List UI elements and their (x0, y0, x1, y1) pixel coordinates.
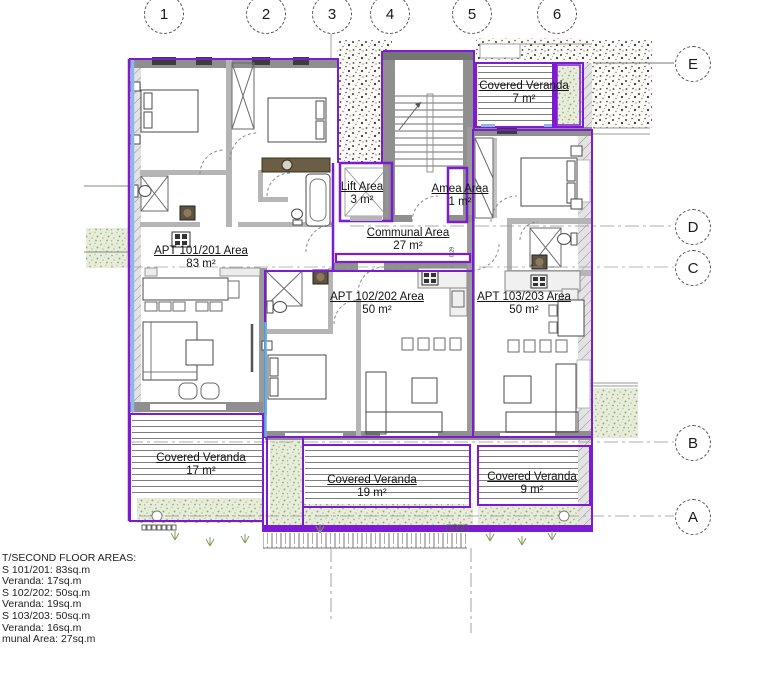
grid-row-bubble-b: B (675, 425, 711, 461)
floor-plan-canvas: 1 2 3 4 5 6 E D C B A APT 101/201 Area 8… (0, 0, 780, 675)
area-tag-value: 50 m² (330, 304, 424, 317)
area-tag-veranda-left: Covered Veranda 17 m² (156, 452, 246, 478)
grid-row-bubble-c: C (675, 250, 711, 286)
area-tag-apt-103-203: APT 103/203 Area 50 m² (477, 291, 571, 317)
area-tag-value: 17 m² (156, 465, 246, 478)
area-tag-value: 1 m² (432, 196, 489, 209)
area-tag-name: Covered Veranda (479, 80, 569, 93)
area-tag-name: Covered Veranda (156, 452, 246, 465)
area-tag-value: 50 m² (477, 304, 571, 317)
area-tag-value: 3 m² (341, 194, 383, 207)
notes-line: T/SECOND FLOOR AREAS: (2, 553, 136, 565)
area-tag-veranda-middle: Covered Veranda 19 m² (327, 474, 417, 500)
area-tag-name: Covered Veranda (327, 474, 417, 487)
area-tag-veranda-right: Covered Veranda 9 m² (487, 471, 577, 497)
area-tag-name: Amea Area (432, 183, 489, 196)
area-tag-name: APT 103/203 Area (477, 291, 571, 304)
area-tag-name: APT 102/202 Area (330, 291, 424, 304)
area-tag-value: 19 m² (327, 487, 417, 500)
area-tag-name: APT 101/201 Area (154, 245, 248, 258)
area-tag-value: 7 m² (479, 93, 569, 106)
grid-row-bubble-e: E (675, 46, 711, 82)
notes-line: munal Area: 27sq.m (2, 634, 136, 646)
area-tag-name: Communal Area (367, 227, 449, 240)
floor-areas-notes: T/SECOND FLOOR AREAS: S 101/201: 83sq.m … (2, 553, 136, 646)
dimension-label: 0.29 (449, 247, 455, 258)
grid-row-bubble-d: D (675, 209, 711, 245)
area-tag-name: Covered Veranda (487, 471, 577, 484)
area-tag-apt-102-202: APT 102/202 Area 50 m² (330, 291, 424, 317)
area-tag-lift: Lift Area 3 m² (341, 181, 383, 207)
area-tag-value: 9 m² (487, 484, 577, 497)
area-tag-apt-101-201: APT 101/201 Area 83 m² (154, 245, 248, 271)
area-tag-name: Lift Area (341, 181, 383, 194)
area-tag-value: 83 m² (154, 258, 248, 271)
notes-line: S 103/203: 50sq.m (2, 611, 136, 623)
area-tag-amea: Amea Area 1 m² (432, 183, 489, 209)
area-tag-value: 27 m² (367, 240, 449, 253)
area-tag-veranda-top: Covered Veranda 7 m² (479, 80, 569, 106)
area-tag-communal: Communal Area 27 m² (367, 227, 449, 253)
stair-core (395, 94, 463, 172)
grid-row-bubble-a: A (675, 499, 711, 535)
